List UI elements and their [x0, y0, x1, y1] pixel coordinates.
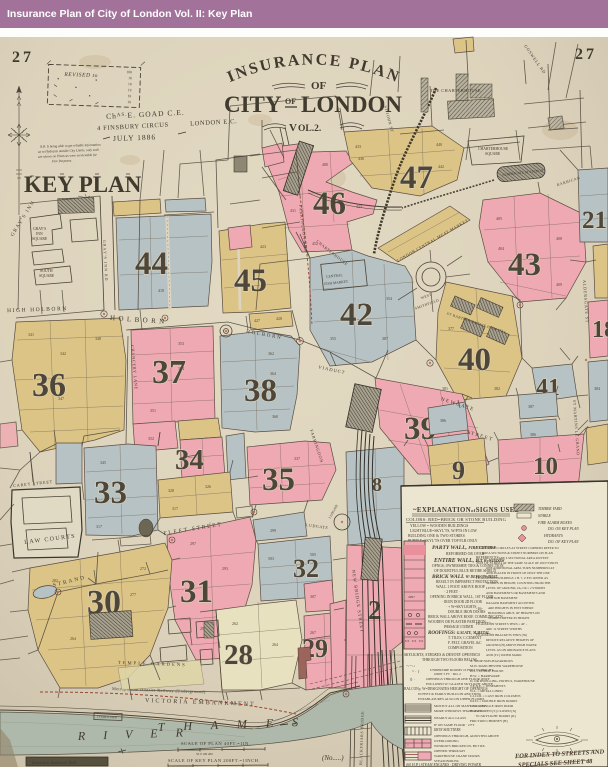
- svg-text:262: 262: [232, 621, 238, 626]
- svg-text:· + W=SKYLIGHTS: · + W=SKYLIGHTS: [446, 605, 476, 609]
- svg-text:44: 44: [135, 246, 168, 282]
- svg-text:DENOTE RELATIVE HEIGHTS OF: DENOTE RELATIVE HEIGHTS OF: [486, 638, 534, 642]
- svg-text:354: 354: [178, 366, 184, 371]
- svg-text:DAGGER BASEMENT ACCEPTED: DAGGER BASEMENT ACCEPTED: [486, 601, 535, 605]
- svg-text:THE CHARTERHOUSE: THE CHARTERHOUSE: [430, 88, 481, 93]
- svg-text:18: 18: [128, 94, 132, 98]
- svg-text:299: 299: [270, 528, 276, 533]
- svg-text:-16-: -16-: [476, 606, 483, 611]
- svg-text:OL.2.: OL.2.: [298, 124, 321, 134]
- svg-text:40: 40: [458, 342, 491, 378]
- svg-text:354: 354: [386, 296, 392, 301]
- svg-text:34: 34: [175, 444, 204, 476]
- svg-text:OF: OF: [311, 80, 327, 92]
- svg-text:386: 386: [530, 432, 536, 437]
- svg-text:360: 360: [272, 414, 278, 419]
- svg-text:SQUARE: SQUARE: [485, 152, 501, 156]
- svg-text:T.E.N.E. = TENEMENTS: T.E.N.E. = TENEMENTS: [470, 684, 506, 688]
- svg-text:328: 328: [168, 488, 174, 493]
- svg-text:342: 342: [60, 351, 66, 356]
- svg-text:188: 188: [126, 70, 132, 74]
- svg-text:GRAY'S: GRAY'S: [33, 227, 46, 231]
- svg-text:431: 431: [290, 208, 296, 213]
- svg-text:440: 440: [436, 142, 442, 147]
- svg-text:CITY: CITY: [224, 92, 282, 117]
- svg-text:28: 28: [224, 639, 253, 671]
- svg-text:AND PLACED IN FRONT OF ONLY TH: AND PLACED IN FRONT OF ONLY THE ONE: [486, 571, 550, 575]
- svg-text:32: 32: [293, 554, 319, 583]
- svg-text:SCALE OF KEY PLAN 200FT.=1INCH: SCALE OF KEY PLAN 200FT.=1INCH.: [168, 758, 260, 763]
- svg-text:Fire Purposes.: Fire Purposes.: [51, 159, 72, 164]
- svg-text:317: 317: [172, 506, 178, 511]
- svg-text:H.W. = HARDWARE: H.W. = HARDWARE: [470, 674, 500, 678]
- svg-text:HOISTS OPEN [S] CLOSED [X]: HOISTS OPEN [S] CLOSED [X]: [470, 709, 516, 713]
- svg-text:341: 341: [28, 332, 34, 337]
- svg-text:¬·¬ ‹: ¬·¬ ‹: [406, 663, 416, 668]
- svg-text:267: 267: [310, 630, 316, 635]
- svg-text:307: 307: [310, 594, 316, 599]
- svg-text:ARE HEIGHTS IN FEET WHERE: ARE HEIGHTS IN FEET WHERE: [488, 606, 533, 610]
- svg-text:AREA SECTIONS & STREET NUMBERS: AREA SECTIONS & STREET NUMBERS ON PLAN: [482, 551, 554, 555]
- svg-text:DO. OF KEY PLAN: DO. OF KEY PLAN: [547, 540, 579, 544]
- svg-text:SCALE OF PLAN 40FT.=1IN.: SCALE OF PLAN 40FT.=1IN.: [181, 741, 251, 746]
- svg-text:42: 42: [340, 297, 373, 333]
- svg-text:STABLE: STABLE: [538, 514, 551, 518]
- svg-text:INN: INN: [36, 232, 43, 236]
- svg-text:PASSAGE UNDER: PASSAGE UNDER: [443, 625, 474, 629]
- svg-text:355: 355: [330, 336, 336, 341]
- svg-text:45: 45: [234, 263, 267, 299]
- svg-text:27: 27: [575, 46, 597, 63]
- svg-text:P.H. = PUBLIC HOUSE: P.H. = PUBLIC HOUSE: [470, 669, 503, 673]
- svg-text:COMPOSITION: COMPOSITION: [448, 646, 473, 650]
- svg-text:TIMBER YARD: TIMBER YARD: [538, 507, 562, 511]
- svg-text:FIGURESIN STREETS THUS = 40’ -: FIGURESIN STREETS THUS = 40’ -: [476, 622, 527, 626]
- svg-text:WALL 1 FOOT ABOVE ROOF: WALL 1 FOOT ABOVE ROOF: [436, 585, 485, 589]
- svg-text:NUMBERSIN CIRCLES AT STREET CO: NUMBERSIN CIRCLES AT STREET CORNERS REFE…: [476, 546, 559, 550]
- svg-text:OMIT 5 FT · DO. 2: OMIT 5 FT · DO. 2: [434, 672, 461, 676]
- svg-text:STORIES DIFFER IN HEIGHT: STORIES DIFFER IN HEIGHT: [488, 616, 530, 620]
- svg-text:C.I.COL = CAST IRON COLUMNS: C.I.COL = CAST IRON COLUMNS: [470, 694, 521, 698]
- svg-text:WAREHOUSE CRANE DOORS: WAREHOUSE CRANE DOORS: [434, 754, 480, 758]
- svg-text:· W=SKYLIGHT DOORS [R]: · W=SKYLIGHT DOORS [R]: [474, 714, 516, 718]
- svg-text:436: 436: [358, 156, 364, 161]
- svg-text:405: 405: [496, 216, 502, 221]
- svg-text:47: 47: [400, 160, 433, 196]
- svg-text:18: 18: [128, 76, 132, 80]
- svg-text:SOUTH: SOUTH: [40, 269, 53, 273]
- svg-text:480: 480: [322, 162, 328, 167]
- svg-text:33: 33: [94, 475, 127, 511]
- svg-text:277: 277: [130, 592, 136, 597]
- svg-text:384: 384: [594, 386, 600, 391]
- svg-text:387: 387: [528, 404, 534, 409]
- svg-text:S.I.D. = SINGLE IRON DOOR: S.I.D. = SINGLE IRON DOOR: [470, 704, 514, 708]
- svg-text:38: 38: [244, 373, 277, 409]
- svg-text:V: V: [289, 122, 297, 134]
- svg-text:337: 337: [294, 456, 300, 461]
- svg-text:AND SUB BASEMENT: AND SUB BASEMENT: [486, 596, 518, 600]
- svg-text:FRICTION CHIMNEY [B]: FRICTION CHIMNEY [B]: [470, 719, 508, 723]
- svg-text:264: 264: [70, 636, 76, 641]
- svg-text:297: 297: [190, 541, 196, 546]
- svg-text:21: 21: [582, 207, 607, 234]
- svg-text:(60 H.P.) STEAM ENGINES · DRI: (60 H.P.) STEAM ENGINES · DRIVING POWER: [406, 763, 482, 767]
- svg-text:AND BASEMENTS OR BASEMENTS AND: AND BASEMENTS OR BASEMENTS AND: [486, 591, 546, 595]
- svg-text:272: 272: [140, 566, 146, 571]
- svg-text:433: 433: [355, 144, 361, 149]
- svg-text:IF ON SAME FLOOR · 2 FT: IF ON SAME FLOOR · 2 FT: [434, 723, 475, 727]
- svg-text:43: 43: [508, 247, 541, 283]
- svg-text:REFERENCESARE 4 SECTIONAL AREA: REFERENCESARE 4 SECTIONAL AREA 400 FEET: [476, 556, 549, 560]
- svg-text:386: 386: [440, 418, 446, 423]
- svg-text:382: 382: [494, 386, 500, 391]
- svg-text:418: 418: [158, 288, 164, 293]
- svg-text:· 2 FEET ·: · 2 FEET ·: [444, 590, 460, 594]
- svg-text:×: ×: [407, 743, 409, 747]
- svg-text:377: 377: [448, 326, 454, 331]
- svg-text:SQUARE: SQUARE: [32, 237, 48, 241]
- svg-text:ARE .X STREET WIDTHS: ARE .X STREET WIDTHS: [486, 627, 522, 631]
- svg-text:(No.....): (No.....): [322, 754, 344, 762]
- svg-text:◊ ·: ◊ ·: [410, 677, 415, 682]
- svg-text:442: 442: [438, 164, 444, 169]
- svg-text:18: 18: [128, 88, 132, 92]
- svg-text:W.L. = METAL LINED: W.L. = METAL LINED: [470, 689, 503, 693]
- svg-text:347: 347: [58, 396, 64, 401]
- svg-text:M.W. MANCHESTER WAREHOUSE: M.W. MANCHESTER WAREHOUSE: [470, 664, 523, 668]
- svg-text:· IRON DOOR 2D FLOOR: · IRON DOOR 2D FLOOR: [442, 600, 483, 604]
- svg-text:FIRE ALARM BOXES: FIRE ALARM BOXES: [537, 521, 572, 525]
- svg-text:D.I.D. = DOUBLE IRON DOORS: D.I.D. = DOUBLE IRON DOORS: [470, 699, 518, 703]
- svg-text:352: 352: [148, 436, 154, 441]
- svg-text:408: 408: [556, 236, 562, 241]
- svg-text:293: 293: [222, 566, 228, 571]
- svg-text:REVISED to: REVISED to: [63, 72, 98, 79]
- svg-text:326: 326: [205, 484, 211, 489]
- svg-text:AND (TC) WATER MARK: AND (TC) WATER MARK: [486, 653, 522, 657]
- svg-text:423: 423: [260, 244, 266, 249]
- svg-text:LEVEL AS ON ORDNANCE PLANS: LEVEL AS ON ORDNANCE PLANS: [486, 648, 536, 652]
- svg-text:503: 503: [268, 556, 274, 561]
- svg-text:362: 362: [268, 351, 274, 356]
- svg-text:OVERLOOKING: OVERLOOKING: [434, 739, 459, 743]
- svg-text:428: 428: [276, 316, 282, 321]
- svg-text:9: 9: [452, 456, 465, 485]
- svg-text:353: 353: [178, 341, 184, 346]
- svg-text:345: 345: [100, 460, 106, 465]
- svg-text:351: 351: [150, 408, 156, 413]
- svg-text:27: 27: [12, 49, 34, 66]
- svg-text:HYDRANTS: HYDRANTS: [543, 534, 563, 538]
- svg-text:364: 364: [270, 371, 276, 376]
- svg-text:31: 31: [180, 574, 213, 610]
- svg-text:FIGURESIN BRACKETS THUS (39): FIGURESIN BRACKETS THUS (39): [476, 633, 527, 637]
- svg-text:NOS OF STREETAT THE SAME SCALE: NOS OF STREETAT THE SAME SCALE OF 200 FT…: [476, 561, 558, 565]
- svg-text:~EXPLANATIONofSIGNS USED~: ~EXPLANATIONofSIGNS USED~: [413, 507, 524, 514]
- svg-text:SQUARE: SQUARE: [39, 274, 55, 278]
- svg-text:348: 348: [95, 336, 101, 341]
- svg-text:18: 18: [127, 100, 131, 104]
- svg-text:505: 505: [310, 552, 316, 557]
- svg-text:KEY PLAN: KEY PLAN: [24, 172, 142, 197]
- svg-text:IRON SHUTTERS: IRON SHUTTERS: [433, 728, 461, 732]
- svg-text:10: 10: [533, 453, 558, 480]
- svg-text:18: 18: [592, 317, 608, 343]
- svg-text:8: 8: [372, 474, 382, 496]
- svg-text:DO. ON KEY PLAN: DO. ON KEY PLAN: [547, 527, 579, 531]
- svg-text:37: 37: [152, 354, 186, 391]
- svg-text:264: 264: [272, 642, 278, 647]
- svg-text:YELLOW = WOODEN BUILDINGS: YELLOW = WOODEN BUILDINGS: [410, 524, 468, 528]
- svg-text:4IN?: 4IN?: [408, 595, 415, 599]
- svg-text:317: 317: [96, 524, 102, 529]
- svg-text:OPENED THROUGH: OPENED THROUGH: [434, 749, 465, 753]
- svg-text:409: 409: [556, 282, 562, 287]
- svg-text:427: 427: [254, 318, 260, 323]
- svg-text:CHARTERHOUSE: CHARTERHOUSE: [478, 147, 509, 151]
- svg-text:Entered at Stationers Hall: Entered at Stationers Hall: [31, 760, 77, 765]
- svg-text:OF: OF: [285, 97, 296, 106]
- svg-text:TEMPLE PIER: TEMPLE PIER: [97, 715, 118, 720]
- svg-text:X. SHOP NON-HAZARDOUS: X. SHOP NON-HAZARDOUS: [470, 659, 513, 663]
- svg-text:COLORS: RED=BRICK OR STONE BUI: COLORS: RED=BRICK OR STONE BUILDING: [406, 517, 507, 522]
- svg-text:404: 404: [498, 246, 504, 251]
- svg-text:NEARLY ALL GLASS: NEARLY ALL GLASS: [434, 716, 466, 720]
- svg-text:18: 18: [128, 82, 132, 86]
- svg-text:50 0 100: 50 0 100 200: [196, 752, 213, 756]
- svg-text:JULY 1886: JULY 1886: [113, 132, 156, 143]
- svg-text:BUILDING ONE & TWO STORIES: BUILDING ONE & TWO STORIES: [408, 534, 465, 538]
- svg-text:GROUND (H) ABOVE HIGH WATER: GROUND (H) ABOVE HIGH WATER: [486, 643, 537, 647]
- svg-text:^ · {: ^ · {: [412, 669, 420, 674]
- svg-text:35: 35: [262, 462, 295, 498]
- svg-text:387: 387: [382, 336, 388, 341]
